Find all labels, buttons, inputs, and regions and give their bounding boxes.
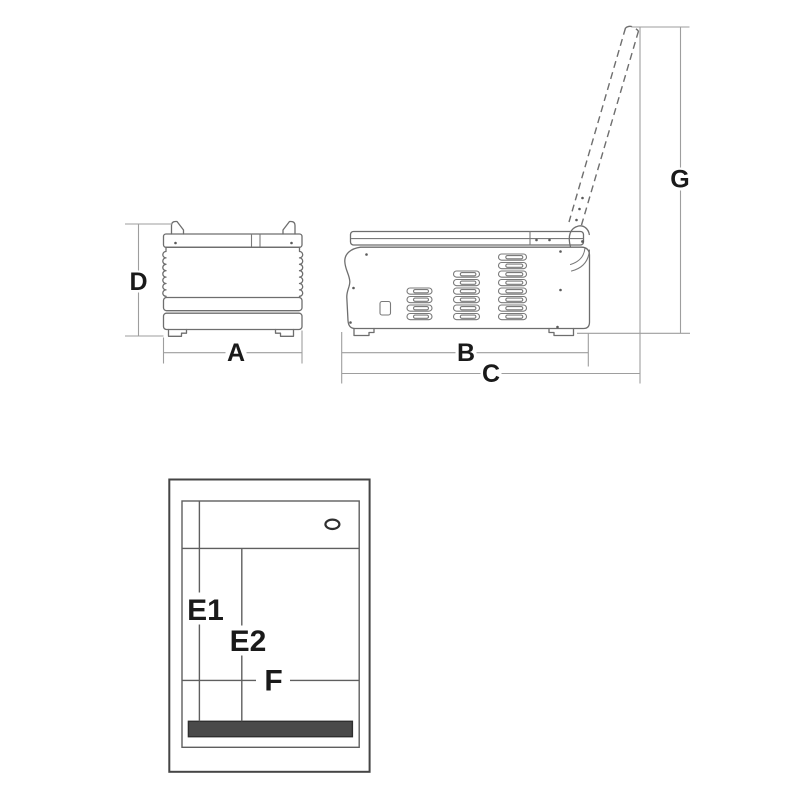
vent-louver — [499, 263, 527, 269]
front-mid-band — [164, 298, 303, 311]
dim-label-e2: E2 — [230, 625, 267, 658]
screw-dot — [556, 326, 559, 329]
dim-label-e1: E1 — [187, 594, 224, 627]
front-right-ridges — [300, 247, 303, 297]
vent-louver — [499, 297, 527, 303]
vent-louver — [454, 288, 480, 294]
front-left-ridges — [163, 247, 166, 297]
lid-screw-dot — [581, 197, 584, 200]
power-switch — [380, 302, 391, 316]
lid-lock-oval — [325, 520, 339, 529]
vent-louver — [454, 297, 480, 303]
front-lid — [164, 234, 303, 247]
right-latch — [283, 222, 295, 235]
lid-screw-dot — [575, 219, 578, 222]
screw-dot — [548, 239, 551, 242]
vent-louver — [407, 288, 432, 294]
vent-louver — [407, 314, 432, 320]
front-right-foot — [276, 330, 294, 337]
vent-louver — [407, 305, 432, 311]
side-view: B C G — [342, 26, 690, 388]
front-left-foot — [169, 330, 187, 337]
dim-label-d: D — [129, 268, 147, 296]
vent-louver — [407, 297, 432, 303]
vent-louver — [499, 271, 527, 277]
vent-louver — [454, 271, 480, 277]
screw-dot — [290, 242, 293, 245]
vent-louver — [499, 314, 527, 320]
screw-dot — [174, 242, 177, 245]
vent-louver — [499, 288, 527, 294]
screw-dot — [349, 321, 352, 324]
side-tray — [351, 232, 584, 246]
screw-dot — [352, 287, 355, 290]
side-right-foot — [549, 329, 574, 336]
open-lid-dashed — [569, 26, 639, 225]
front-body — [163, 247, 303, 336]
dim-label-c: C — [482, 360, 500, 388]
screw-dot — [559, 289, 562, 292]
side-body — [345, 247, 590, 335]
hinge-pivot-dot — [581, 240, 584, 243]
dim-label-f: F — [264, 665, 282, 698]
dimension-b: B — [342, 332, 589, 384]
screw-dot — [535, 239, 538, 242]
seal-bar — [188, 721, 352, 736]
screw-dot — [365, 253, 368, 256]
vent-louver — [499, 280, 527, 286]
vent-louver-column-middle — [454, 271, 480, 320]
dimension-e1: E1 — [187, 501, 224, 721]
front-base-band — [164, 313, 303, 329]
technical-drawing: D A — [0, 0, 800, 800]
dimension-d: D — [125, 224, 172, 336]
dim-label-g: G — [670, 166, 689, 194]
vent-louver-column-left — [407, 288, 432, 320]
vent-louver — [454, 305, 480, 311]
left-latch — [172, 222, 184, 235]
dim-label-b: B — [457, 339, 475, 367]
vent-louver — [499, 254, 527, 260]
lid-screw-dot — [578, 208, 581, 211]
vent-louver-column-right — [499, 254, 527, 320]
dimension-f: F — [182, 665, 359, 698]
dimension-diagram-page: D A — [0, 0, 800, 800]
dimension-e2: E2 — [230, 548, 267, 721]
side-left-foot — [354, 329, 374, 336]
top-view: E1 E2 F — [169, 480, 369, 772]
dimension-c: C — [342, 27, 640, 388]
screw-dot — [559, 250, 562, 253]
vent-louver — [454, 280, 480, 286]
vent-louver — [454, 314, 480, 320]
front-view: D A — [125, 222, 303, 368]
dim-label-a: A — [227, 339, 245, 367]
vent-louver — [499, 305, 527, 311]
